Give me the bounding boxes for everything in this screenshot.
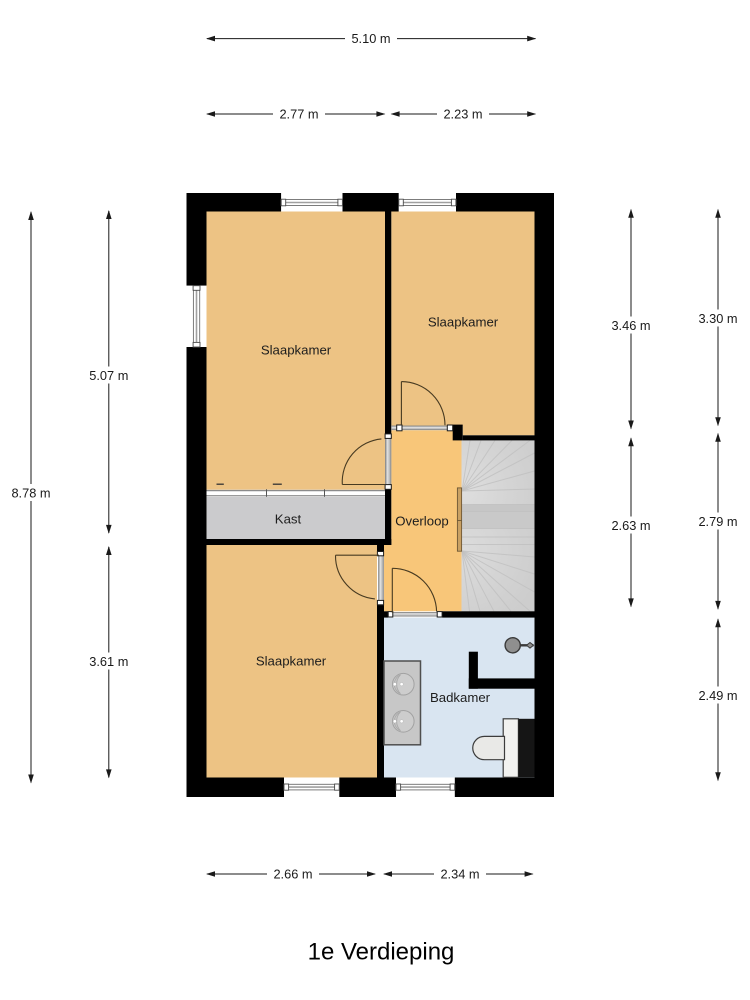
svg-text:2.79 m: 2.79 m — [698, 514, 737, 529]
svg-text:2.63 m: 2.63 m — [611, 518, 650, 533]
svg-text:3.30 m: 3.30 m — [698, 311, 737, 326]
svg-text:3.61 m: 3.61 m — [89, 654, 128, 669]
svg-text:2.23 m: 2.23 m — [443, 106, 482, 121]
svg-text:1e Verdieping: 1e Verdieping — [308, 939, 455, 966]
svg-text:5.07 m: 5.07 m — [89, 368, 128, 383]
svg-text:2.34 m: 2.34 m — [440, 866, 479, 881]
svg-text:Kast: Kast — [275, 512, 302, 527]
svg-text:8.78 m: 8.78 m — [11, 486, 50, 501]
svg-text:2.77 m: 2.77 m — [279, 106, 318, 121]
svg-text:Overloop: Overloop — [395, 514, 449, 529]
svg-text:Slaapkamer: Slaapkamer — [428, 315, 499, 330]
svg-text:5.10 m: 5.10 m — [351, 31, 390, 46]
svg-text:2.49 m: 2.49 m — [698, 688, 737, 703]
svg-text:Slaapkamer: Slaapkamer — [261, 343, 332, 358]
svg-text:2.66 m: 2.66 m — [273, 866, 312, 881]
svg-text:Badkamer: Badkamer — [430, 690, 491, 705]
svg-text:3.46 m: 3.46 m — [611, 318, 650, 333]
svg-text:Slaapkamer: Slaapkamer — [256, 654, 327, 669]
